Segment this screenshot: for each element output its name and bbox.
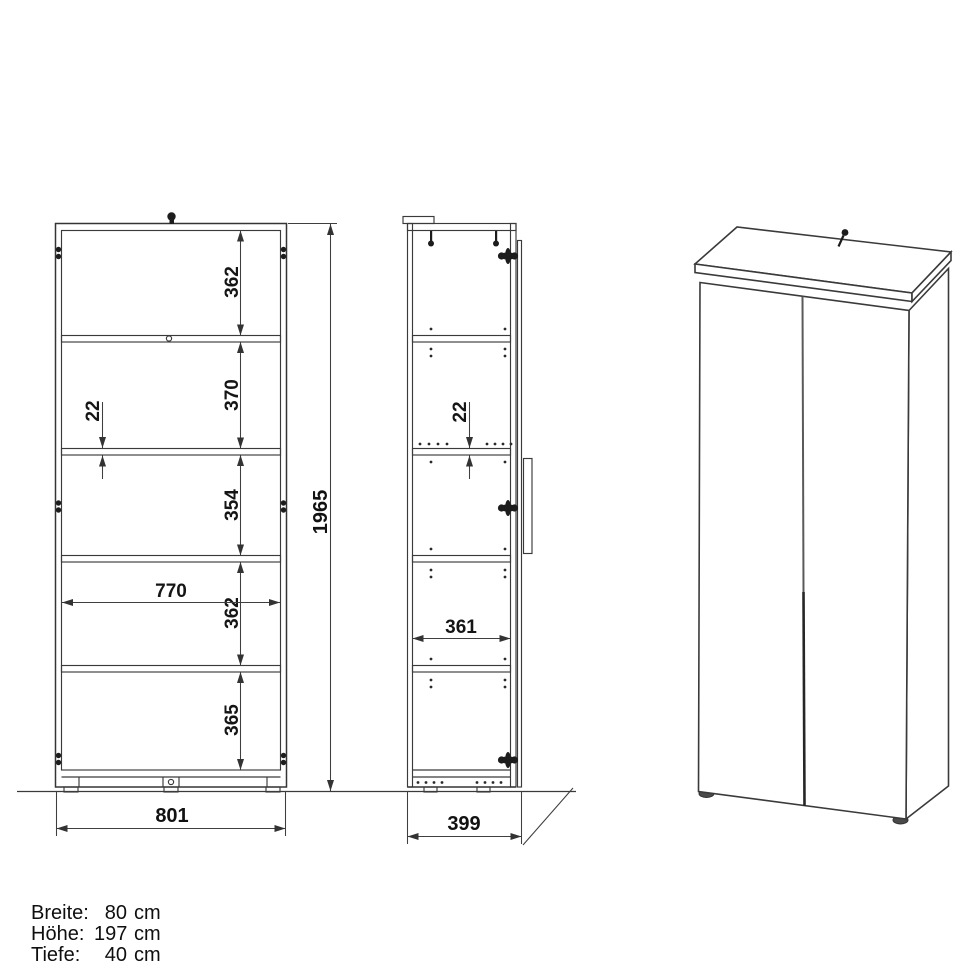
dim-front-interior-width: 770: [155, 581, 187, 602]
front-shelf-2: [62, 449, 281, 456]
persp-door-gap-upper: [803, 297, 804, 593]
dim-front-section-5: 365: [222, 704, 243, 736]
front-overall-height-dimension: 1965: [288, 224, 337, 792]
furniture-technical-drawing: 362 370 354 362 365 22 770 801 1: [0, 0, 970, 971]
front-section-dimensions: 362 370 354 362 365: [222, 231, 243, 771]
side-door-handle: [524, 459, 533, 554]
side-elevation-view: 22 361 399: [403, 217, 573, 846]
dimensions-summary: Breite: 80 cm Höhe: 197 cm Tiefe: 40 cm: [31, 903, 161, 966]
front-carcass-outline: [56, 224, 287, 788]
side-hinge-bottom: [498, 752, 518, 768]
dim-side-overall-depth: 399: [447, 813, 480, 835]
side-shelf-3: [413, 556, 511, 563]
side-top-panel: [408, 224, 517, 231]
spec-value: 197: [94, 924, 127, 945]
spec-value: 40: [94, 945, 127, 966]
side-overall-depth-dimension: 399: [408, 788, 574, 845]
dim-front-section-4: 362: [222, 597, 243, 629]
front-shelf-3: [62, 556, 281, 563]
spec-row-depth: Tiefe: 40 cm: [31, 945, 161, 966]
side-hinge-middle: [498, 500, 518, 516]
side-door-panel: [518, 241, 522, 788]
side-back-wall: [408, 224, 413, 788]
spec-label: Breite:: [31, 903, 94, 924]
dim-front-shelf-thickness: 22: [83, 400, 104, 421]
spec-label: Tiefe:: [31, 945, 94, 966]
front-wall-anchor: [167, 212, 175, 224]
side-interior-depth-dimension: 361: [413, 617, 511, 639]
spec-unit: cm: [127, 945, 161, 966]
side-hinge-top: [498, 248, 518, 264]
drawing-canvas: 362 370 354 362 365 22 770 801 1: [0, 0, 970, 971]
dim-front-section-1: 362: [222, 266, 243, 298]
side-dowel-pegs: [428, 231, 499, 247]
side-shelf-thickness-dimension: 22: [450, 401, 471, 479]
dim-side-interior-depth: 361: [445, 617, 477, 638]
side-shelf-2: [413, 449, 511, 456]
spec-label: Höhe:: [31, 924, 94, 945]
front-carcass-inner: [62, 231, 281, 771]
dim-front-overall-width: 801: [155, 805, 188, 827]
persp-side-face: [906, 269, 949, 820]
perspective-view: [695, 227, 951, 824]
front-interior-width-dimension: 770: [62, 581, 280, 603]
persp-door-gap-lower: [804, 592, 805, 806]
front-overall-width-dimension: 801: [57, 791, 286, 836]
front-hinges: [56, 247, 286, 765]
dim-side-shelf-thickness: 22: [450, 401, 471, 422]
side-shelf-1: [413, 336, 511, 343]
spec-row-width: Breite: 80 cm: [31, 903, 161, 924]
side-shelf-4: [413, 666, 511, 673]
dim-front-overall-height: 1965: [310, 490, 332, 535]
dim-front-section-3: 354: [222, 489, 243, 521]
spec-unit: cm: [127, 924, 161, 945]
front-shelf-thickness-dimension: 22: [83, 400, 104, 479]
dim-front-section-2: 370: [222, 379, 243, 411]
front-shelf-hole: [166, 336, 171, 341]
front-base-fitting-hole: [168, 779, 173, 784]
spec-value: 80: [94, 903, 127, 924]
spec-row-height: Höhe: 197 cm: [31, 924, 161, 945]
side-wall-bracket: [403, 217, 434, 224]
front-elevation-view: 362 370 354 362 365 22 770 801 1: [56, 212, 338, 836]
front-shelf-4: [62, 666, 281, 673]
spec-unit: cm: [127, 903, 161, 924]
